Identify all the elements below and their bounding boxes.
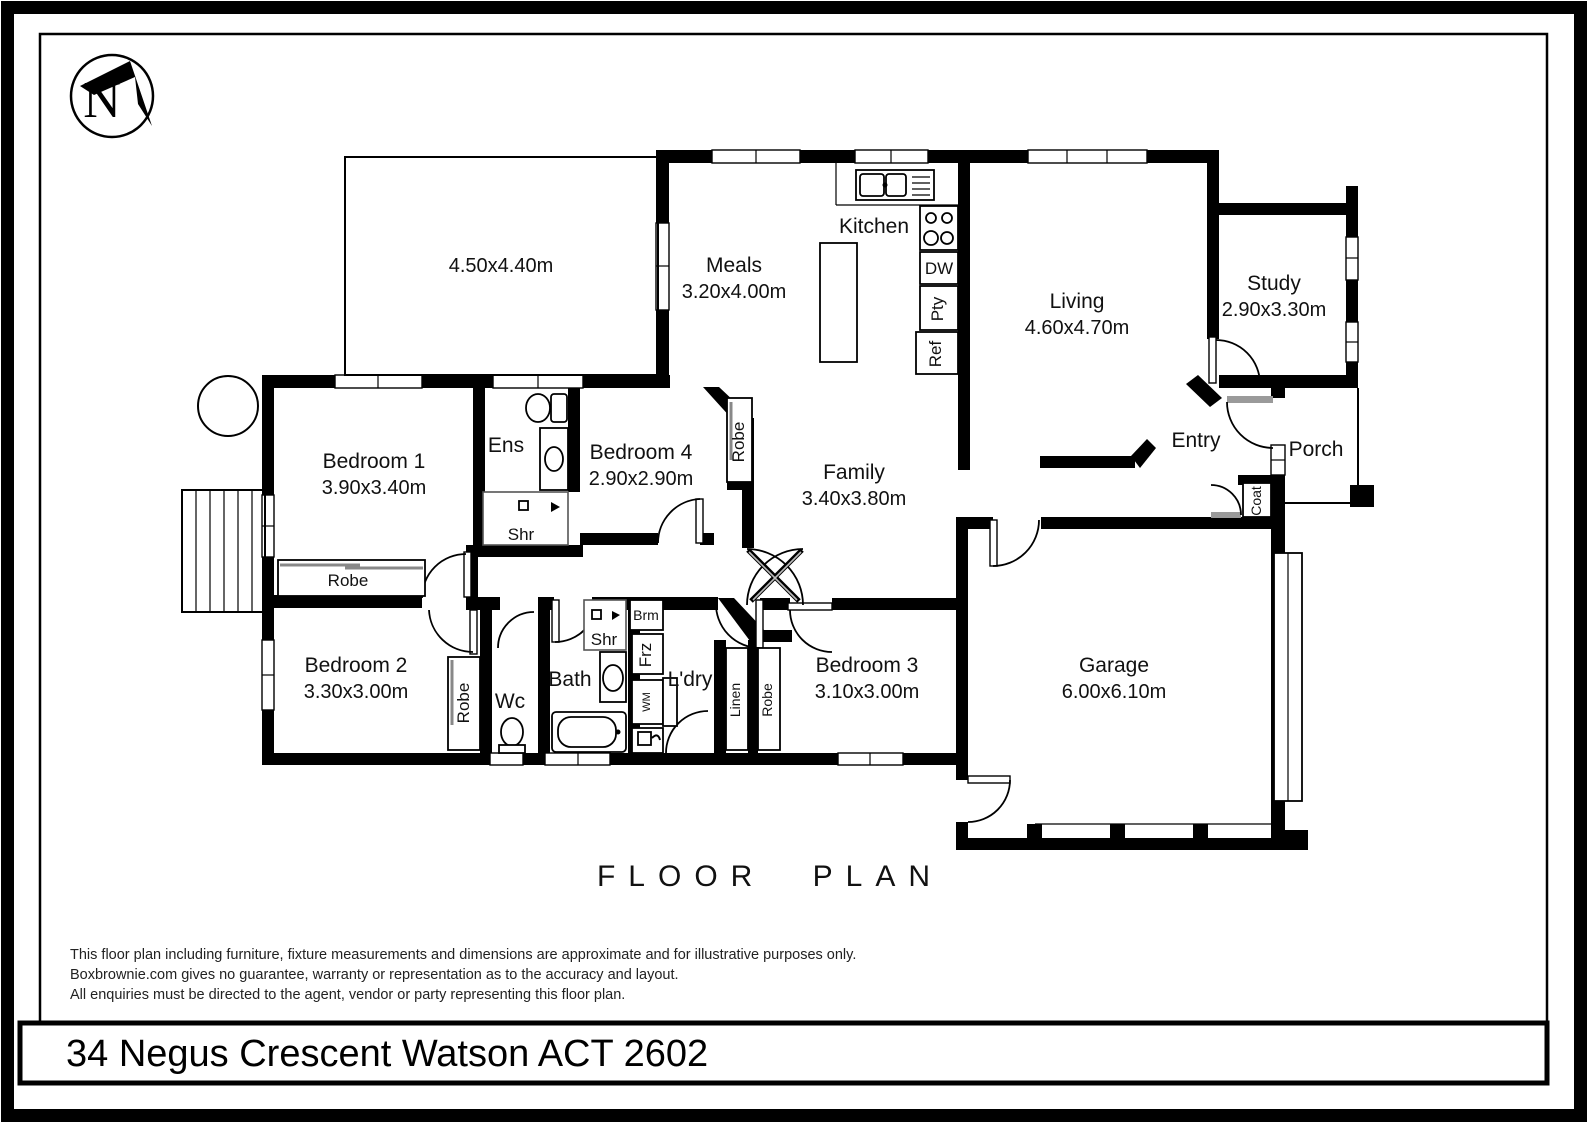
- bedroom1-robe-label: Robe: [328, 571, 369, 590]
- kitchen-label: Kitchen: [839, 215, 909, 238]
- study-label: Study: [1247, 272, 1301, 295]
- washing-machine-label: WM: [641, 692, 653, 712]
- pantry-label: Pty: [928, 296, 947, 321]
- linen-label: Linen: [727, 683, 743, 717]
- living-label: Living: [1050, 290, 1105, 313]
- bedroom3-robe-label: Robe: [759, 683, 775, 717]
- dishwasher-label: DW: [925, 259, 953, 278]
- bedroom1-label: Bedroom 1: [323, 450, 426, 473]
- window-bed3-bottom: [838, 753, 903, 765]
- floor-plan-title: FLOOR PLAN: [597, 860, 943, 893]
- bedroom3-dim: 3.10x3.00m: [815, 681, 920, 703]
- window-meals-top: [712, 150, 800, 163]
- disclaimer-line-3: All enquiries must be directed to the ag…: [70, 987, 625, 1003]
- family-dim: 3.40x3.80m: [802, 488, 907, 510]
- windows: [262, 150, 1358, 765]
- living-dim: 4.60x4.70m: [1025, 317, 1130, 339]
- bathroom-vanity-icon: [600, 652, 626, 702]
- broom-label: Brm: [633, 607, 659, 623]
- window-study-right-2: [1346, 322, 1358, 362]
- floor-plan-page: N: [0, 0, 1588, 1123]
- island-bench: [820, 243, 857, 362]
- garage-internal-door: [968, 776, 1010, 822]
- bedroom3-label: Bedroom 3: [816, 654, 919, 677]
- ensuite-shower-label: Shr: [508, 525, 535, 544]
- garage-label: Garage: [1079, 654, 1149, 677]
- ensuite-label: Ens: [488, 434, 524, 457]
- bedroom2-robe-label: Robe: [454, 683, 473, 724]
- bathroom-shower-label: Shr: [591, 630, 618, 649]
- porch-label: Porch: [1289, 438, 1344, 461]
- ensuite-vanity-icon: [540, 428, 568, 490]
- bedroom1-door: [422, 552, 471, 598]
- ensuite-toilet-icon: [526, 394, 567, 422]
- window-bed2-left: [262, 640, 274, 710]
- outdoor-area-dim: 4.50x4.40m: [449, 255, 554, 277]
- bedroom4-dim: 2.90x2.90m: [589, 468, 694, 490]
- tree-icon: [198, 376, 258, 436]
- bedroom1-dim: 3.90x3.40m: [322, 477, 427, 499]
- coat-door: [1211, 485, 1241, 518]
- freezer-label: Frz: [636, 643, 655, 668]
- coat-label: Coat: [1248, 486, 1264, 516]
- front-entry-door: [1227, 396, 1273, 448]
- window-bed1-top-1: [335, 375, 422, 388]
- wc-door: [498, 612, 534, 648]
- study-dim: 2.90x3.30m: [1222, 299, 1327, 321]
- window-wc-bottom: [490, 753, 523, 765]
- bedroom2-label: Bedroom 2: [305, 654, 408, 677]
- garage-dim: 6.00x6.10m: [1062, 681, 1167, 703]
- bathroom-label: Bath: [548, 668, 591, 691]
- bathtub-icon: [552, 712, 626, 752]
- meals-label: Meals: [706, 254, 762, 277]
- bedroom4-label: Bedroom 4: [590, 441, 693, 464]
- north-indicator: N: [71, 55, 153, 137]
- window-kitchen-top: [855, 150, 928, 163]
- bedroom2-door: [429, 610, 477, 654]
- laundry-label: L'dry: [668, 668, 713, 691]
- entry-label: Entry: [1171, 429, 1221, 452]
- hallway-to-garage-wing-door: [990, 520, 1039, 566]
- window-bed1-left: [262, 495, 274, 557]
- bedroom3-door: [788, 603, 832, 652]
- refrigerator-label: Ref: [926, 341, 945, 368]
- window-living-top: [1028, 150, 1147, 163]
- window-bed1-top-2: [493, 375, 583, 388]
- hall-double-doors: [747, 549, 803, 605]
- bedroom4-robe-label: Robe: [729, 422, 748, 463]
- kitchen-sink-icon: [856, 170, 934, 200]
- disclaimer: This floor plan including furniture, fix…: [70, 947, 856, 1003]
- family-label: Family: [823, 461, 885, 484]
- disclaimer-line-2: Boxbrownie.com gives no guarantee, warra…: [70, 967, 679, 983]
- wc-toilet-icon: [499, 718, 525, 753]
- window-bath-bottom: [545, 753, 610, 765]
- address-text: 34 Negus Crescent Watson ACT 2602: [66, 1033, 708, 1075]
- address-bar: 34 Negus Crescent Watson ACT 2602: [20, 1023, 1547, 1083]
- wc-label: Wc: [495, 690, 525, 713]
- meals-dim: 3.20x4.00m: [682, 281, 787, 303]
- bedroom4-door: [658, 499, 703, 543]
- window-study-right-1: [1346, 237, 1358, 280]
- window-entry-porch: [1271, 445, 1285, 475]
- bedroom2-dim: 3.30x3.00m: [304, 681, 409, 703]
- stove-icon: [920, 206, 958, 250]
- disclaimer-line-1: This floor plan including furniture, fix…: [70, 947, 856, 963]
- deck-steps: [182, 490, 265, 612]
- laundry-trough-icon: [632, 728, 663, 753]
